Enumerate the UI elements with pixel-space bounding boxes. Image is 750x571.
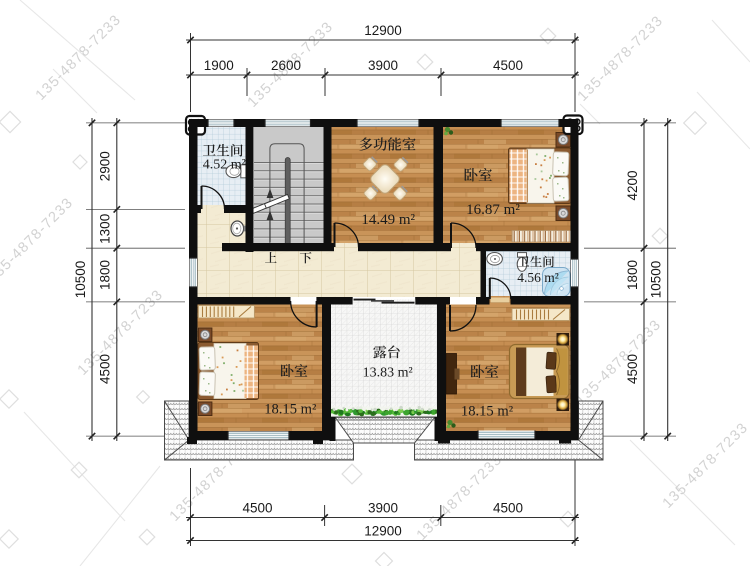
svg-text:4500: 4500 (98, 354, 113, 384)
svg-text:4500: 4500 (493, 501, 523, 516)
svg-text:16.87 m²: 16.87 m² (466, 202, 520, 218)
svg-text:10500: 10500 (73, 261, 88, 299)
svg-text:4500: 4500 (493, 58, 523, 73)
svg-text:1800: 1800 (625, 260, 640, 290)
svg-text:135-4878-7233: 135-4878-7233 (0, 195, 77, 287)
svg-text:135-4878-7233: 135-4878-7233 (575, 13, 667, 105)
svg-text:10500: 10500 (649, 261, 664, 299)
svg-text:4200: 4200 (625, 170, 640, 200)
svg-text:135-4878-7233: 135-4878-7233 (414, 452, 506, 544)
svg-text:4.56 m²: 4.56 m² (517, 270, 559, 285)
svg-text:4500: 4500 (625, 354, 640, 384)
svg-text:4.52 m²: 4.52 m² (203, 157, 246, 172)
svg-text:12900: 12900 (364, 23, 402, 38)
svg-text:4500: 4500 (242, 501, 272, 516)
svg-text:135-4878-7233: 135-4878-7233 (75, 287, 167, 379)
svg-text:12900: 12900 (364, 524, 402, 539)
svg-text:1800: 1800 (98, 260, 113, 290)
svg-text:1300: 1300 (98, 214, 113, 244)
svg-text:13.83 m²: 13.83 m² (363, 366, 413, 381)
svg-text:2900: 2900 (98, 151, 113, 181)
svg-text:18.15 m²: 18.15 m² (264, 402, 317, 418)
svg-text:135-4878-7233: 135-4878-7233 (660, 420, 750, 512)
svg-text:14.49 m²: 14.49 m² (361, 212, 415, 228)
svg-text:135-4878-7233: 135-4878-7233 (33, 12, 125, 104)
svg-text:1900: 1900 (204, 58, 234, 73)
svg-text:3900: 3900 (368, 501, 398, 516)
svg-text:2600: 2600 (271, 58, 301, 73)
svg-text:135-4878-7233: 135-4878-7233 (573, 317, 665, 409)
svg-text:18.15 m²: 18.15 m² (461, 403, 514, 419)
svg-text:3900: 3900 (368, 58, 398, 73)
